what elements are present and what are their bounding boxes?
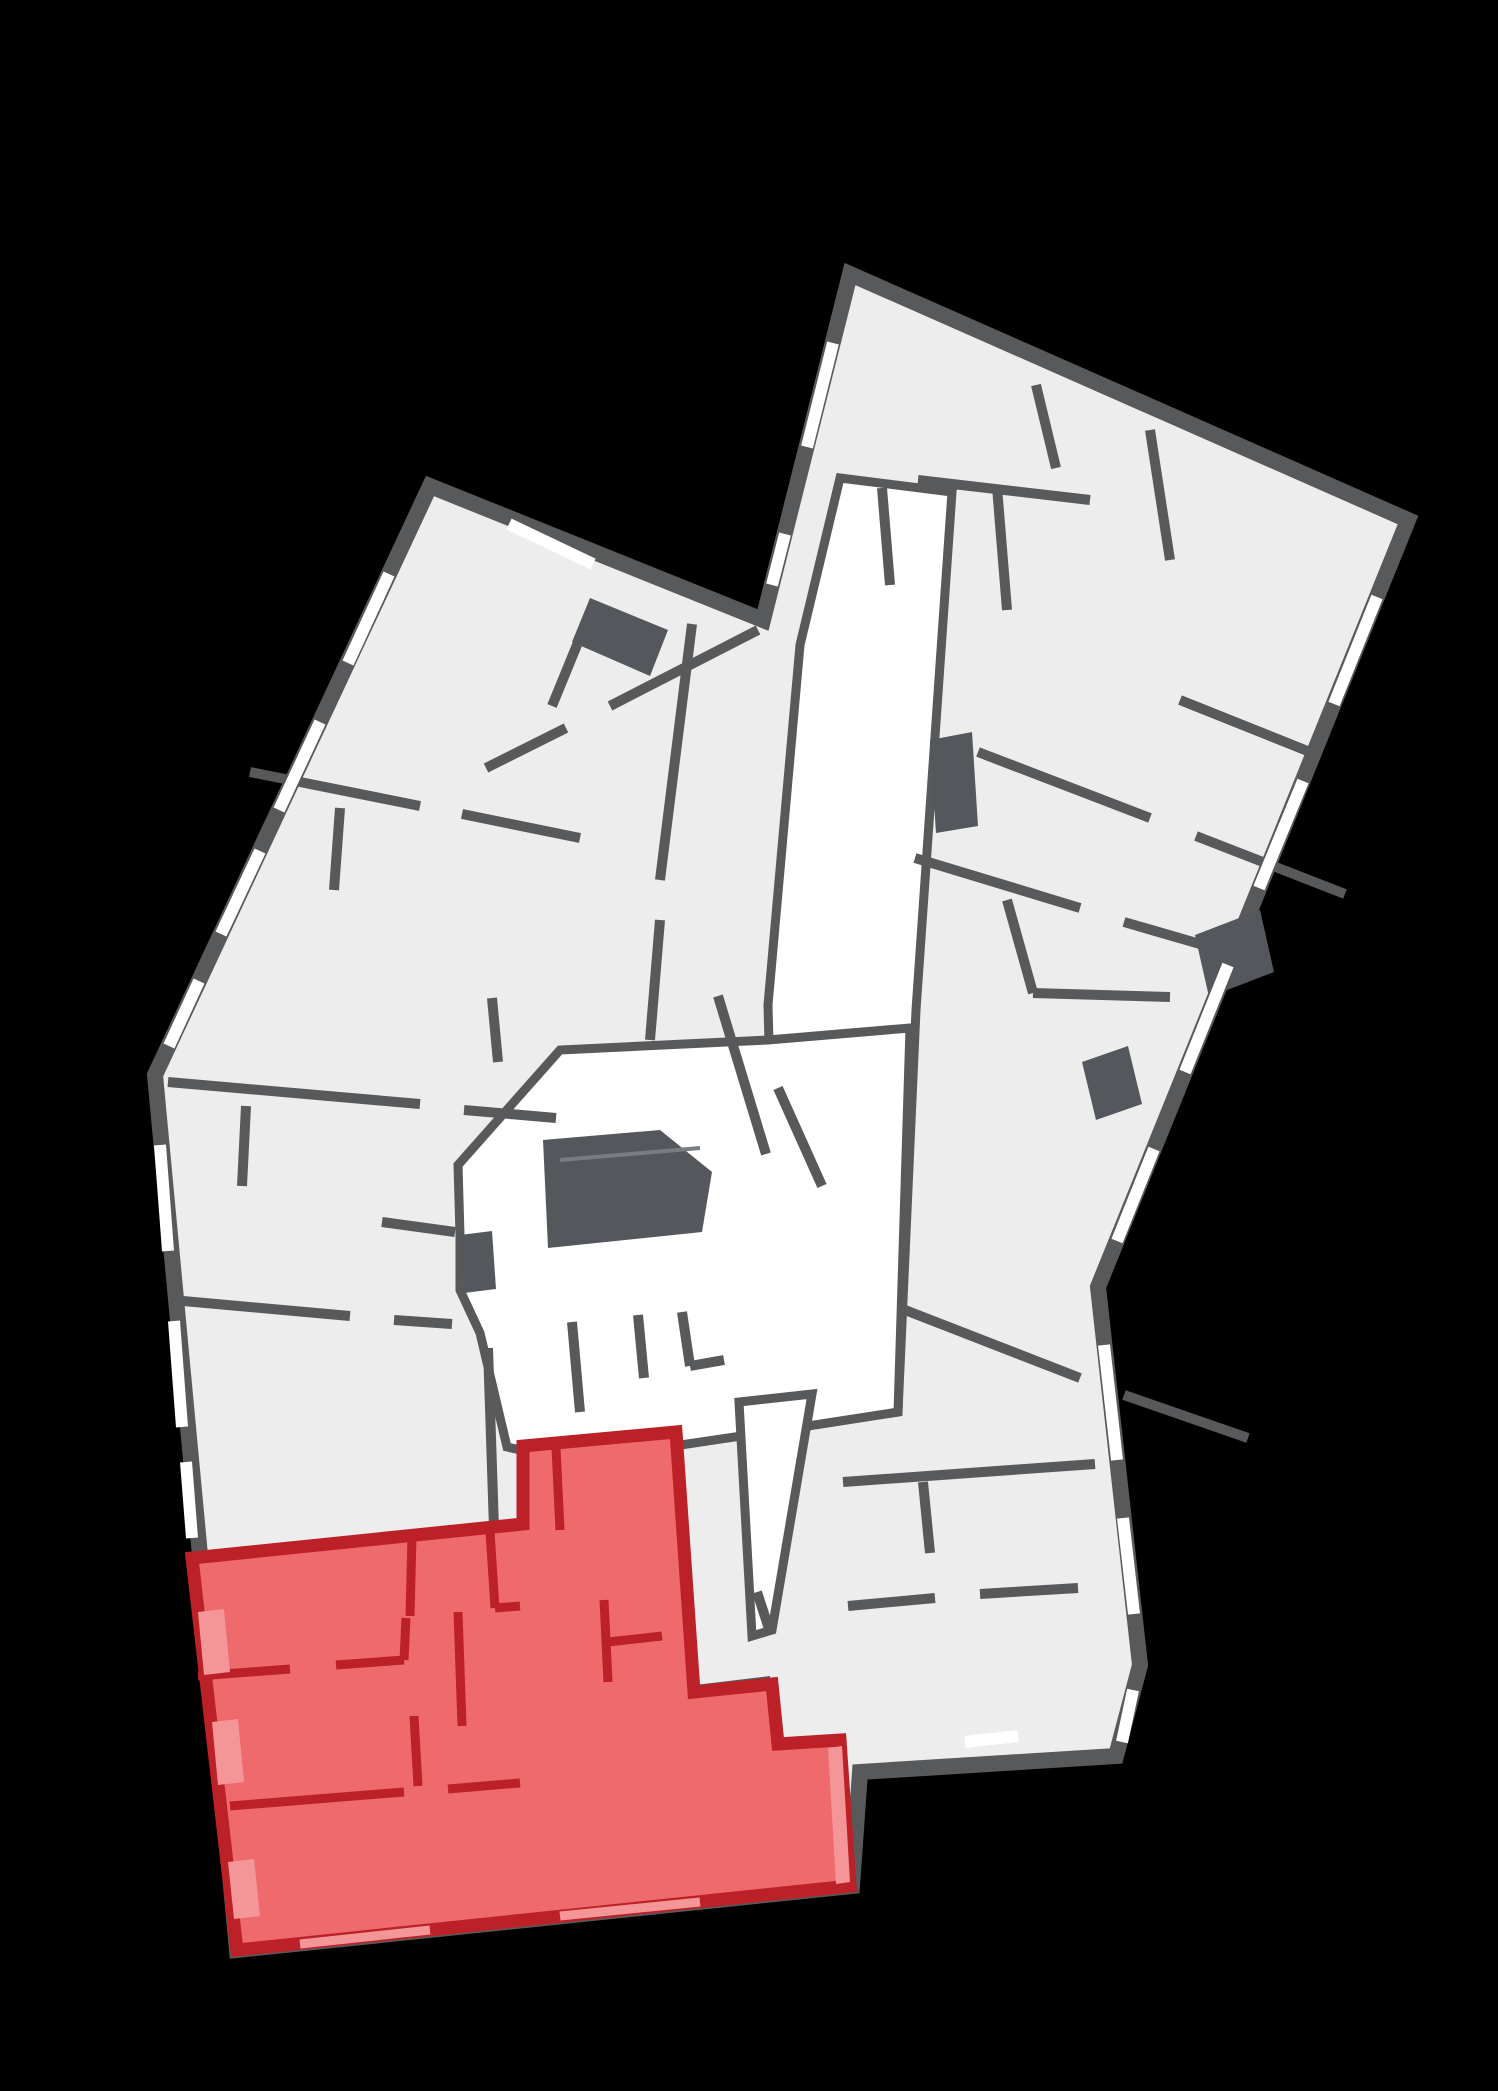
shaft-block-north xyxy=(930,732,978,833)
corridor-hall xyxy=(458,1028,910,1458)
floorplan-stage xyxy=(0,0,1498,2091)
shaft-block-west xyxy=(460,1231,496,1293)
floorplan-canvas xyxy=(0,0,1498,2091)
